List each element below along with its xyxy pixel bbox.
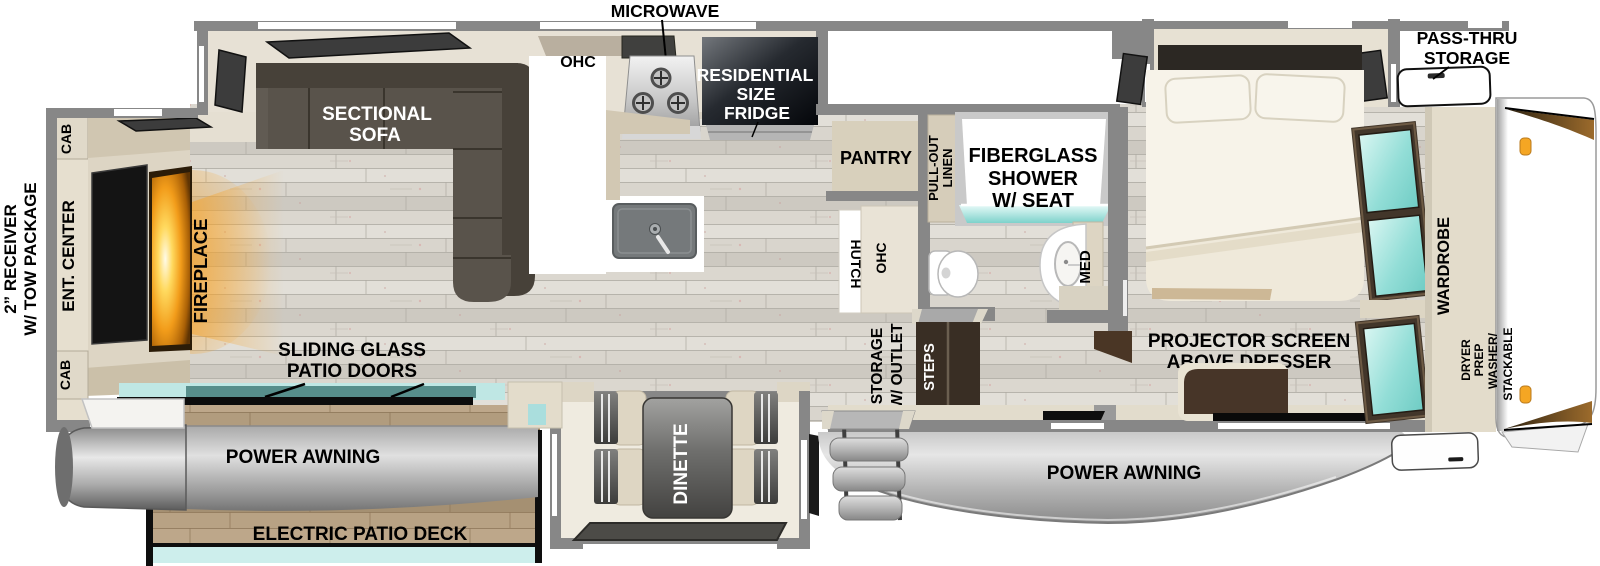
svg-text:POWER AWNING: POWER AWNING — [226, 447, 380, 468]
svg-text:STACKABLE: STACKABLE — [1501, 327, 1515, 400]
svg-text:W/ OUTLET: W/ OUTLET — [889, 323, 906, 409]
svg-text:LINEN: LINEN — [940, 149, 955, 188]
svg-text:FIBERGLASS: FIBERGLASS — [969, 145, 1098, 167]
svg-text:SOFA: SOFA — [349, 125, 401, 146]
svg-text:W/ SEAT: W/ SEAT — [992, 190, 1074, 212]
svg-text:PASS-THRU: PASS-THRU — [1417, 28, 1518, 48]
svg-text:POWER AWNING: POWER AWNING — [1047, 463, 1201, 484]
svg-text:STEPS: STEPS — [922, 343, 938, 391]
svg-text:PANTRY: PANTRY — [840, 148, 912, 168]
svg-text:SIZE: SIZE — [737, 84, 776, 104]
svg-text:OHC: OHC — [873, 242, 889, 273]
svg-text:FRIDGE: FRIDGE — [724, 103, 790, 123]
svg-text:WARDROBE: WARDROBE — [1435, 217, 1453, 315]
svg-text:SECTIONAL: SECTIONAL — [322, 104, 432, 125]
svg-text:STORAGE: STORAGE — [1424, 48, 1510, 68]
svg-text:RESIDENTIAL: RESIDENTIAL — [697, 65, 814, 85]
svg-text:MED: MED — [1077, 250, 1094, 284]
svg-text:ENT. CENTER: ENT. CENTER — [59, 200, 78, 311]
svg-text:PROJECTOR SCREEN: PROJECTOR SCREEN — [1148, 331, 1350, 352]
svg-text:WASHER/: WASHER/ — [1486, 332, 1500, 389]
svg-text:ELECTRIC PATIO DECK: ELECTRIC PATIO DECK — [253, 524, 468, 545]
svg-text:PREP: PREP — [1472, 344, 1486, 377]
svg-text:MICROWAVE: MICROWAVE — [611, 1, 720, 21]
svg-text:W/ TOW PACKAGE: W/ TOW PACKAGE — [21, 182, 40, 335]
svg-text:PATIO DOORS: PATIO DOORS — [287, 361, 417, 382]
svg-text:STORAGE: STORAGE — [869, 328, 886, 404]
svg-text:DINETTE: DINETTE — [671, 423, 692, 504]
svg-text:DRYER: DRYER — [1459, 339, 1473, 381]
svg-text:OHC: OHC — [560, 54, 596, 71]
svg-text:CAB: CAB — [58, 124, 74, 154]
svg-text:SLIDING GLASS: SLIDING GLASS — [278, 340, 426, 361]
svg-text:FIREPLACE: FIREPLACE — [190, 219, 211, 324]
svg-text:HUTCH: HUTCH — [848, 240, 864, 289]
svg-text:SHOWER: SHOWER — [988, 168, 1079, 190]
svg-text:2” RECEIVER: 2” RECEIVER — [1, 204, 20, 314]
svg-text:PULL-OUT: PULL-OUT — [926, 135, 941, 201]
svg-text:CAB: CAB — [57, 360, 73, 390]
